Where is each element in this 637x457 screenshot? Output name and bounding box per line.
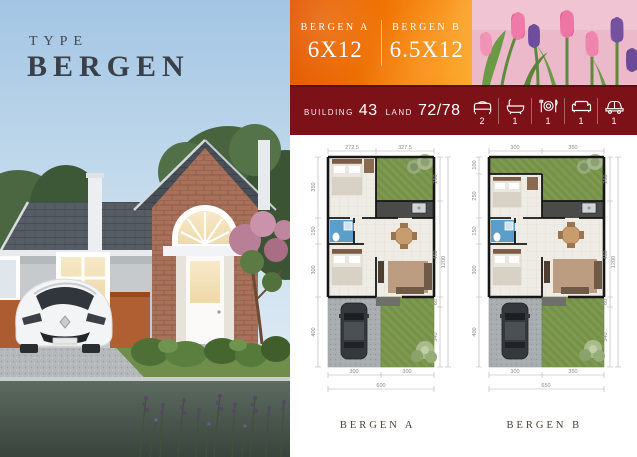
variant-bergen-a: BERGEN A 6X12	[290, 22, 381, 63]
plan-a-porch	[376, 297, 400, 306]
plan-a-car	[339, 303, 369, 359]
plan-b-car	[500, 303, 530, 359]
amenity-carport: 1	[599, 97, 629, 126]
land-label: LAND	[386, 108, 413, 117]
plan-b-bedroom-2	[493, 249, 521, 285]
car-icon	[603, 97, 626, 115]
svg-text:350: 350	[569, 145, 578, 151]
svg-text:150: 150	[311, 226, 317, 235]
dining-count: 1	[545, 116, 550, 126]
svg-text:250: 250	[433, 174, 439, 183]
carport-count: 1	[611, 116, 616, 126]
floorplan-bergen-a: 272.5 327.5 350 150 300 400 250 450 60 3…	[304, 143, 452, 431]
bathtub-icon	[504, 97, 527, 115]
bed-icon	[471, 97, 494, 115]
building-value: 43	[359, 102, 378, 120]
curb	[0, 377, 290, 381]
front-door	[170, 256, 240, 350]
svg-text:250: 250	[472, 191, 478, 200]
land-value: 72/78	[418, 102, 461, 120]
type-label: TYPE	[29, 34, 88, 50]
svg-text:650: 650	[542, 383, 551, 389]
dining-icon	[537, 97, 560, 115]
bedroom-count: 2	[479, 116, 484, 126]
page-title: BERGEN	[27, 50, 190, 84]
amenity-icons: 2 1	[467, 97, 629, 126]
svg-text:60: 60	[603, 299, 609, 305]
plan-a-caption: BERGEN A	[304, 420, 452, 431]
car-illustration	[16, 279, 112, 353]
svg-text:327.5: 327.5	[398, 145, 412, 151]
amenity-separator	[597, 98, 598, 124]
svg-text:300: 300	[402, 369, 411, 375]
amenity-living: 1	[566, 97, 596, 126]
house-photo-panel: TYPE BERGEN	[0, 0, 290, 457]
tulips-illustration	[472, 0, 637, 85]
svg-text:300: 300	[311, 265, 317, 274]
amenity-bathrooms: 1	[500, 97, 530, 126]
variant-b-name: BERGEN B	[382, 22, 473, 33]
sofa-icon	[570, 97, 593, 115]
svg-text:400: 400	[472, 327, 478, 336]
svg-text:600: 600	[376, 383, 385, 389]
floorplan-a-drawing: 272.5 327.5 350 150 300 400 250 450 60 3…	[304, 143, 452, 405]
tulip-photo	[472, 0, 637, 85]
svg-text:150: 150	[472, 226, 478, 235]
living-count: 1	[578, 116, 583, 126]
svg-text:300: 300	[349, 369, 358, 375]
door-handle	[217, 310, 220, 313]
bathroom-count: 1	[512, 116, 517, 126]
building-land-specs: BUILDING 43 LAND 72/78	[290, 102, 460, 120]
amenity-separator	[498, 98, 499, 124]
svg-text:60: 60	[433, 299, 439, 305]
svg-text:350: 350	[311, 182, 317, 191]
floorplan-bergen-b: 300 350 100 250 150 300 400 250 450 60 3…	[465, 143, 623, 431]
svg-text:1200: 1200	[441, 256, 447, 268]
plan-b-porch	[542, 297, 566, 306]
road	[0, 380, 290, 457]
white-pillar	[258, 140, 270, 210]
svg-text:450: 450	[603, 250, 609, 259]
top-row: BERGEN A 6X12 BERGEN B 6.5X12	[290, 0, 637, 85]
variant-a-name: BERGEN A	[290, 22, 381, 33]
amenity-bedrooms: 2	[467, 97, 497, 126]
svg-text:350: 350	[569, 369, 578, 375]
chimney	[88, 176, 102, 254]
svg-text:272.5: 272.5	[345, 145, 359, 151]
svg-text:400: 400	[311, 327, 317, 336]
plan-a-bedroom-2	[332, 249, 362, 285]
variant-b-size: 6.5X12	[382, 37, 473, 63]
svg-text:340: 340	[433, 332, 439, 341]
floorplans-area: 272.5 327.5 350 150 300 400 250 450 60 3…	[290, 135, 637, 457]
floorplan-b-drawing: 300 350 100 250 150 300 400 250 450 60 3…	[465, 143, 623, 405]
variant-banner: BERGEN A 6X12 BERGEN B 6.5X12	[290, 0, 472, 85]
svg-text:300: 300	[511, 369, 520, 375]
svg-text:100: 100	[472, 160, 478, 169]
plan-b-caption: BERGEN B	[465, 420, 623, 431]
far-left-window	[0, 256, 20, 302]
license-plate	[53, 338, 77, 344]
info-panel: BERGEN A 6X12 BERGEN B 6.5X12	[290, 0, 637, 457]
brochure-poster: TYPE BERGEN BERGEN A 6X12 BERGEN B 6.5X1…	[0, 0, 637, 457]
svg-text:300: 300	[472, 265, 478, 274]
svg-text:450: 450	[433, 250, 439, 259]
spec-bar: BUILDING 43 LAND 72/78 2	[290, 85, 637, 135]
svg-text:250: 250	[603, 174, 609, 183]
amenity-separator	[564, 98, 565, 124]
amenity-separator	[531, 98, 532, 124]
svg-text:340: 340	[603, 332, 609, 341]
building-label: BUILDING	[304, 108, 354, 117]
variant-bergen-b: BERGEN B 6.5X12	[382, 22, 473, 63]
variant-a-size: 6X12	[290, 37, 381, 63]
svg-text:300: 300	[511, 145, 520, 151]
svg-text:1200: 1200	[611, 256, 617, 268]
amenity-dining: 1	[533, 97, 563, 126]
